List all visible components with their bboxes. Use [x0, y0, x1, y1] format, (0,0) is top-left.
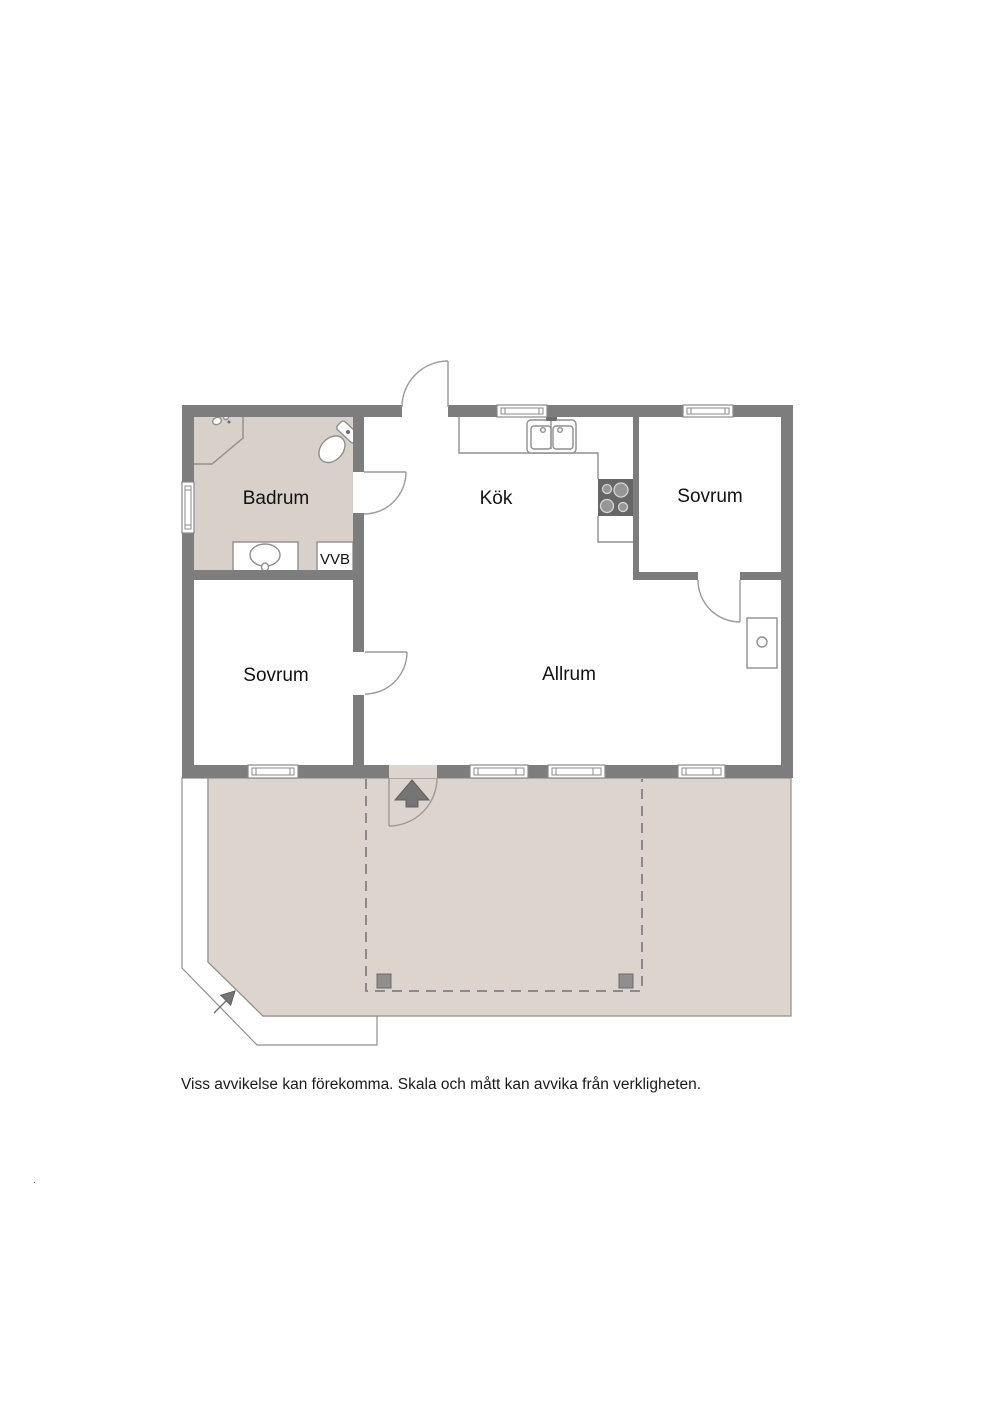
terrace-deck — [208, 778, 791, 1016]
terrace — [208, 778, 791, 1016]
room-label-allrum: Allrum — [542, 664, 596, 685]
floor-plan-page: Badrum Kök Sovrum Sovrum Allrum VVB Viss… — [0, 0, 992, 1403]
window-bedroom-left — [248, 765, 298, 778]
window-allrum-1 — [470, 765, 528, 778]
fireplace-icon — [747, 618, 777, 668]
stray-dot: . — [33, 1175, 36, 1186]
window-allrum-3 — [678, 765, 725, 778]
room-label-badrum: Badrum — [243, 488, 310, 509]
room-label-kok: Kök — [480, 488, 513, 509]
stove-icon — [598, 479, 633, 516]
window-bathroom — [182, 482, 194, 533]
kitchen-sink-icon — [527, 416, 576, 453]
room-label-vvb: VVB — [320, 551, 350, 568]
back-door — [402, 361, 448, 407]
window-kitchen — [497, 405, 547, 417]
terrace-post — [377, 974, 391, 988]
room-label-sovrum-left: Sovrum — [243, 665, 308, 686]
window-bedroom-right — [683, 405, 733, 417]
room-label-sovrum-right: Sovrum — [677, 486, 742, 507]
disclaimer-caption: Viss avvikelse kan förekomma. Skala och … — [181, 1076, 701, 1093]
floor-plan: Badrum Kök Sovrum Sovrum Allrum VVB Viss… — [0, 0, 992, 1403]
front-door-opening — [389, 765, 437, 778]
window-allrum-2 — [548, 765, 605, 778]
terrace-post — [619, 974, 633, 988]
